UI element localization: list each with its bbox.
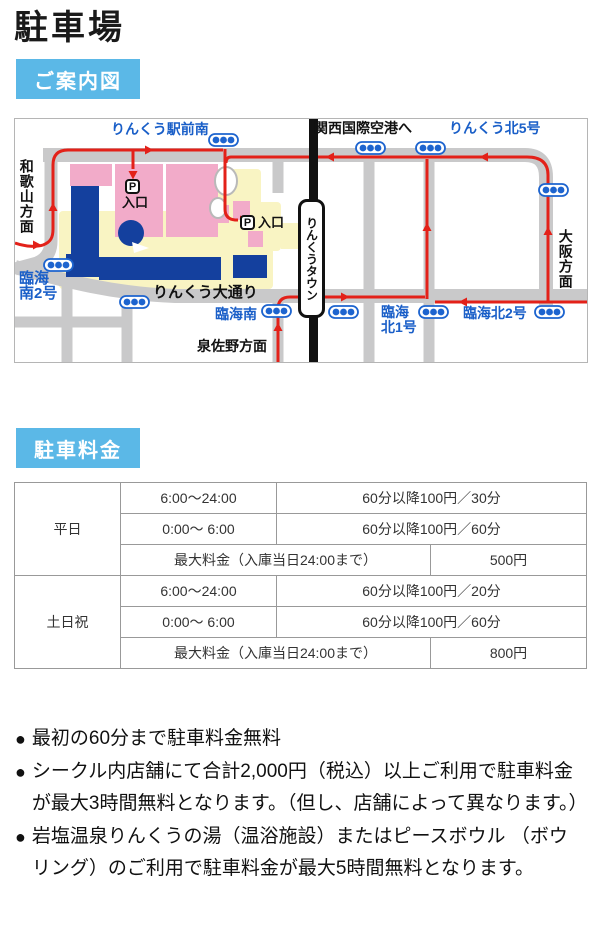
traffic-light-icon — [209, 134, 238, 146]
table-row: 土日祝 6:00〜24:00 60分以降100円／20分 — [15, 576, 587, 607]
map-label-line: 北1号 — [381, 319, 417, 335]
max-fee-label-cell: 最大料金（入庫当日24:00まで） — [121, 638, 431, 669]
map-label-wakayama-direction: 和歌山方面 — [19, 159, 34, 234]
time-cell: 6:00〜24:00 — [121, 483, 277, 514]
map-label-rinkai-kita2: 臨海北2号 — [463, 306, 527, 321]
map-label-osaka-direction: 大阪方面 — [558, 229, 573, 289]
traffic-light-icon — [329, 306, 358, 318]
traffic-light-icon — [535, 306, 564, 318]
notes-list: ● 最初の60分まで駐車料金無料 ● シークル内店舗にて合計2,000円（税込）… — [15, 723, 585, 885]
max-fee-label-cell: 最大料金（入庫当日24:00まで） — [121, 545, 431, 576]
traffic-light-icon — [419, 306, 448, 318]
map-label-entrance-2: 入口 — [258, 216, 284, 230]
map-label-rinkai-kita1: 臨海北1号 — [381, 305, 417, 335]
fee-table: 平日 6:00〜24:00 60分以降100円／30分 0:00〜 6:00 6… — [14, 482, 587, 669]
parking-entrance-icon: P — [125, 179, 140, 194]
p-mark: P — [129, 181, 136, 193]
map-label-line: 臨海 — [381, 304, 409, 320]
time-cell: 6:00〜24:00 — [121, 576, 277, 607]
map-label-rinkai-minami2: 臨海南2号 — [19, 271, 57, 301]
fee-cell: 60分以降100円／60分 — [277, 514, 587, 545]
parking-page: 駐車場 ご案内図 — [0, 0, 600, 935]
note-item: ● シークル内店舗にて合計2,000円（税込）以上ご利用で駐車料金が最大3時間無… — [15, 756, 585, 820]
parking-guide-map: りんくう駅前南 関西国際空港へ りんくう北5号 和歌山方面 臨海南2号 りんくう… — [14, 118, 588, 363]
map-label-entrance-1: 入口 — [122, 196, 148, 210]
note-text: 最初の60分まで駐車料金無料 — [32, 723, 585, 755]
traffic-light-icon — [120, 296, 149, 308]
fee-cell: 60分以降100円／60分 — [277, 607, 587, 638]
bullet-icon: ● — [15, 756, 26, 788]
station-label-rinku-town: りんくうタウン — [298, 199, 325, 318]
note-item: ● 最初の60分まで駐車料金無料 — [15, 723, 585, 755]
traffic-light-icon — [262, 305, 291, 317]
note-text: シークル内店舗にて合計2,000円（税込）以上ご利用で駐車料金が最大3時間無料と… — [32, 756, 585, 820]
note-text: 岩塩温泉りんくうの湯（温浴施設）またはピースボウル （ボウリング）のご利用で駐車… — [32, 821, 585, 885]
p-mark: P — [244, 217, 251, 229]
bullet-icon: ● — [15, 821, 26, 853]
parking-entrance-icon: P — [240, 215, 255, 230]
page-title: 駐車場 — [14, 6, 600, 50]
map-label-izumisano-direction: 泉佐野方面 — [197, 339, 267, 354]
fee-cell: 60分以降100円／20分 — [277, 576, 587, 607]
map-label-rinku-ekimae-minami: りんくう駅前南 — [111, 122, 209, 137]
bullet-icon: ● — [15, 723, 26, 755]
map-label-rinku-odori: りんくう大通り — [153, 285, 258, 301]
day-cell-weekday: 平日 — [15, 483, 121, 576]
max-fee-value-cell: 500円 — [431, 545, 587, 576]
station-name: りんくうタウン — [306, 217, 318, 301]
traffic-light-icon — [356, 142, 385, 154]
traffic-light-icon — [539, 184, 568, 196]
map-label-line: 南2号 — [19, 285, 57, 302]
map-label-rinkai-minami: 臨海南 — [215, 307, 257, 322]
day-cell-weekend: 土日祝 — [15, 576, 121, 669]
time-cell: 0:00〜 6:00 — [121, 514, 277, 545]
note-item: ● 岩塩温泉りんくうの湯（温浴施設）またはピースボウル （ボウリング）のご利用で… — [15, 821, 585, 885]
max-fee-value-cell: 800円 — [431, 638, 587, 669]
fee-cell: 60分以降100円／30分 — [277, 483, 587, 514]
traffic-light-icon — [416, 142, 445, 154]
map-label-kansai-airport: 関西国際空港へ — [314, 121, 412, 136]
table-row: 平日 6:00〜24:00 60分以降100円／30分 — [15, 483, 587, 514]
section-badge-fees: 駐車料金 — [16, 428, 140, 468]
map-label-rinku-kita5: りんくう北5号 — [449, 121, 541, 136]
time-cell: 0:00〜 6:00 — [121, 607, 277, 638]
section-badge-guide-map: ご案内図 — [16, 59, 140, 99]
